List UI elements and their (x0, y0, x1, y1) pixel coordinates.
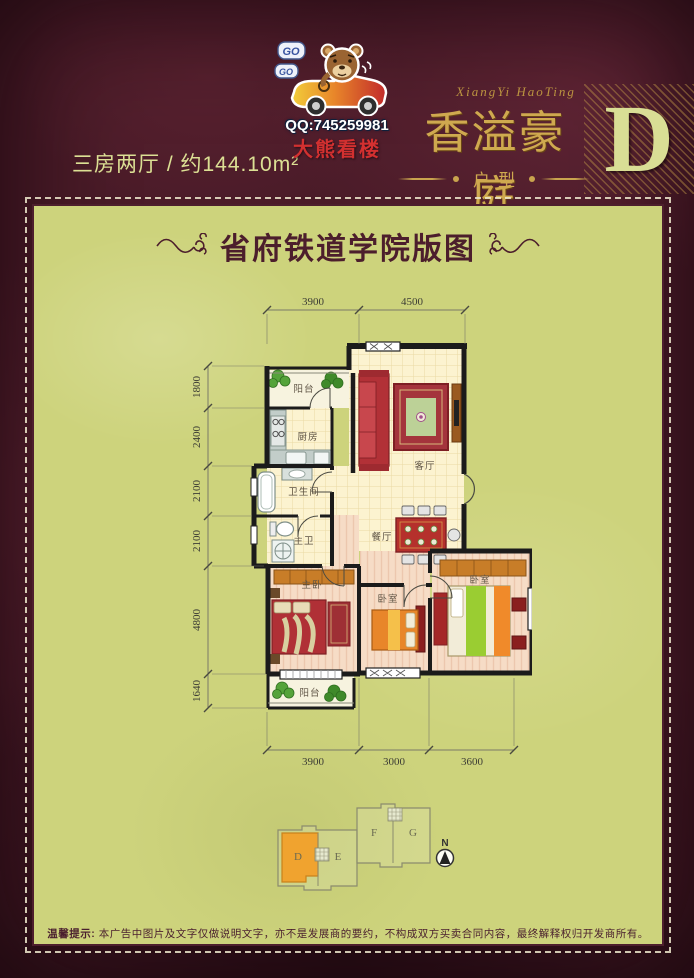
dim-left-1: 1800 (191, 376, 203, 399)
keyplan-unit-g-label: G (409, 827, 417, 839)
keyplan-unit-f-label: F (371, 827, 377, 839)
panel-title-row: 省府铁道学院版图 (34, 224, 662, 268)
dim-left-6: 1640 (191, 680, 203, 703)
room-label-master-bed: 主卧 (301, 579, 322, 591)
keyplan-unit-d-label: D (294, 851, 302, 863)
north-arrow-icon: N (437, 838, 454, 867)
dim-bottom-3: 3600 (461, 756, 484, 768)
room-label-kitchen: 厨房 (297, 431, 318, 443)
site-key-plan: D E F G N (262, 798, 472, 928)
north-label: N (441, 838, 448, 849)
living-rug (394, 384, 448, 450)
master-bath-fixtures (270, 522, 294, 562)
room-label-bedroom3: 卧室 (469, 574, 490, 586)
flourish-right-icon (486, 233, 540, 259)
sofa (359, 370, 389, 471)
divider-dot-right (529, 176, 535, 182)
poster-page: 三房两厅 / 约144.10m² (0, 0, 694, 978)
keyplan-unit-e-label: E (335, 851, 342, 863)
room-label-dining: 餐厅 (371, 531, 392, 543)
watermark-text: 大熊看楼 (272, 133, 402, 162)
dim-left-2: 2400 (191, 426, 203, 449)
room-label-master-bath: 主卫 (293, 535, 314, 547)
unit-spec-subtitle: 三房两厅 / 约144.10m² (72, 148, 299, 178)
disclaimer-text: 本广告中图片及文字仅做说明文字，亦不是发展商的要约，不构成双方买卖合同内容，最终… (99, 928, 649, 940)
floor-plan: 阳台 厨房 客厅 卫生间 主卫 餐厅 主卧 卧室 卧室 阳台 (182, 288, 532, 783)
brand-category-label: 户型 (473, 166, 523, 191)
go-bubble-1: GO (282, 46, 300, 58)
panel-title: 省府铁道学院版图 (220, 224, 476, 268)
room-label-bath: 卫生间 (288, 486, 320, 498)
disclaimer-label: 温馨提示: (47, 928, 95, 940)
unit-letter-band: D (584, 84, 694, 194)
flourish-left-icon (156, 233, 210, 259)
floorplan-panel: 省府铁道学院版图 (32, 204, 664, 946)
go-bubble-2: GO (279, 67, 293, 77)
divider-dot-left (453, 176, 459, 182)
divider-line-right (541, 178, 590, 180)
dim-bottom-2: 3000 (383, 756, 406, 768)
dim-left-5: 4800 (191, 609, 203, 632)
room-label-bedroom2: 卧室 (377, 593, 398, 605)
unit-letter: D (604, 91, 673, 187)
brand-divider: 户型 (398, 166, 590, 191)
go-speech-bubbles-icon: GO GO (275, 42, 305, 78)
divider-line-left (398, 178, 447, 180)
tv-cabinet (452, 384, 461, 442)
dim-bottom-1: 3900 (302, 756, 325, 768)
dim-top-1: 3900 (302, 296, 325, 308)
room-label-balcony-top: 阳台 (293, 383, 314, 395)
dim-left-3: 2100 (191, 480, 203, 503)
qq-contact-text: QQ:745259981 (272, 117, 402, 134)
bedroom2-bed (372, 606, 425, 652)
dim-left-4: 2100 (191, 530, 203, 553)
bear-car-logo-icon: GO GO (274, 40, 400, 116)
dim-top-2: 4500 (401, 296, 424, 308)
disclaimer: 温馨提示: 本广告中图片及文字仅做说明文字，亦不是发展商的要约，不构成双方买卖合… (34, 926, 662, 941)
room-label-balcony-bottom: 阳台 (299, 687, 320, 699)
room-label-living: 客厅 (414, 460, 435, 472)
